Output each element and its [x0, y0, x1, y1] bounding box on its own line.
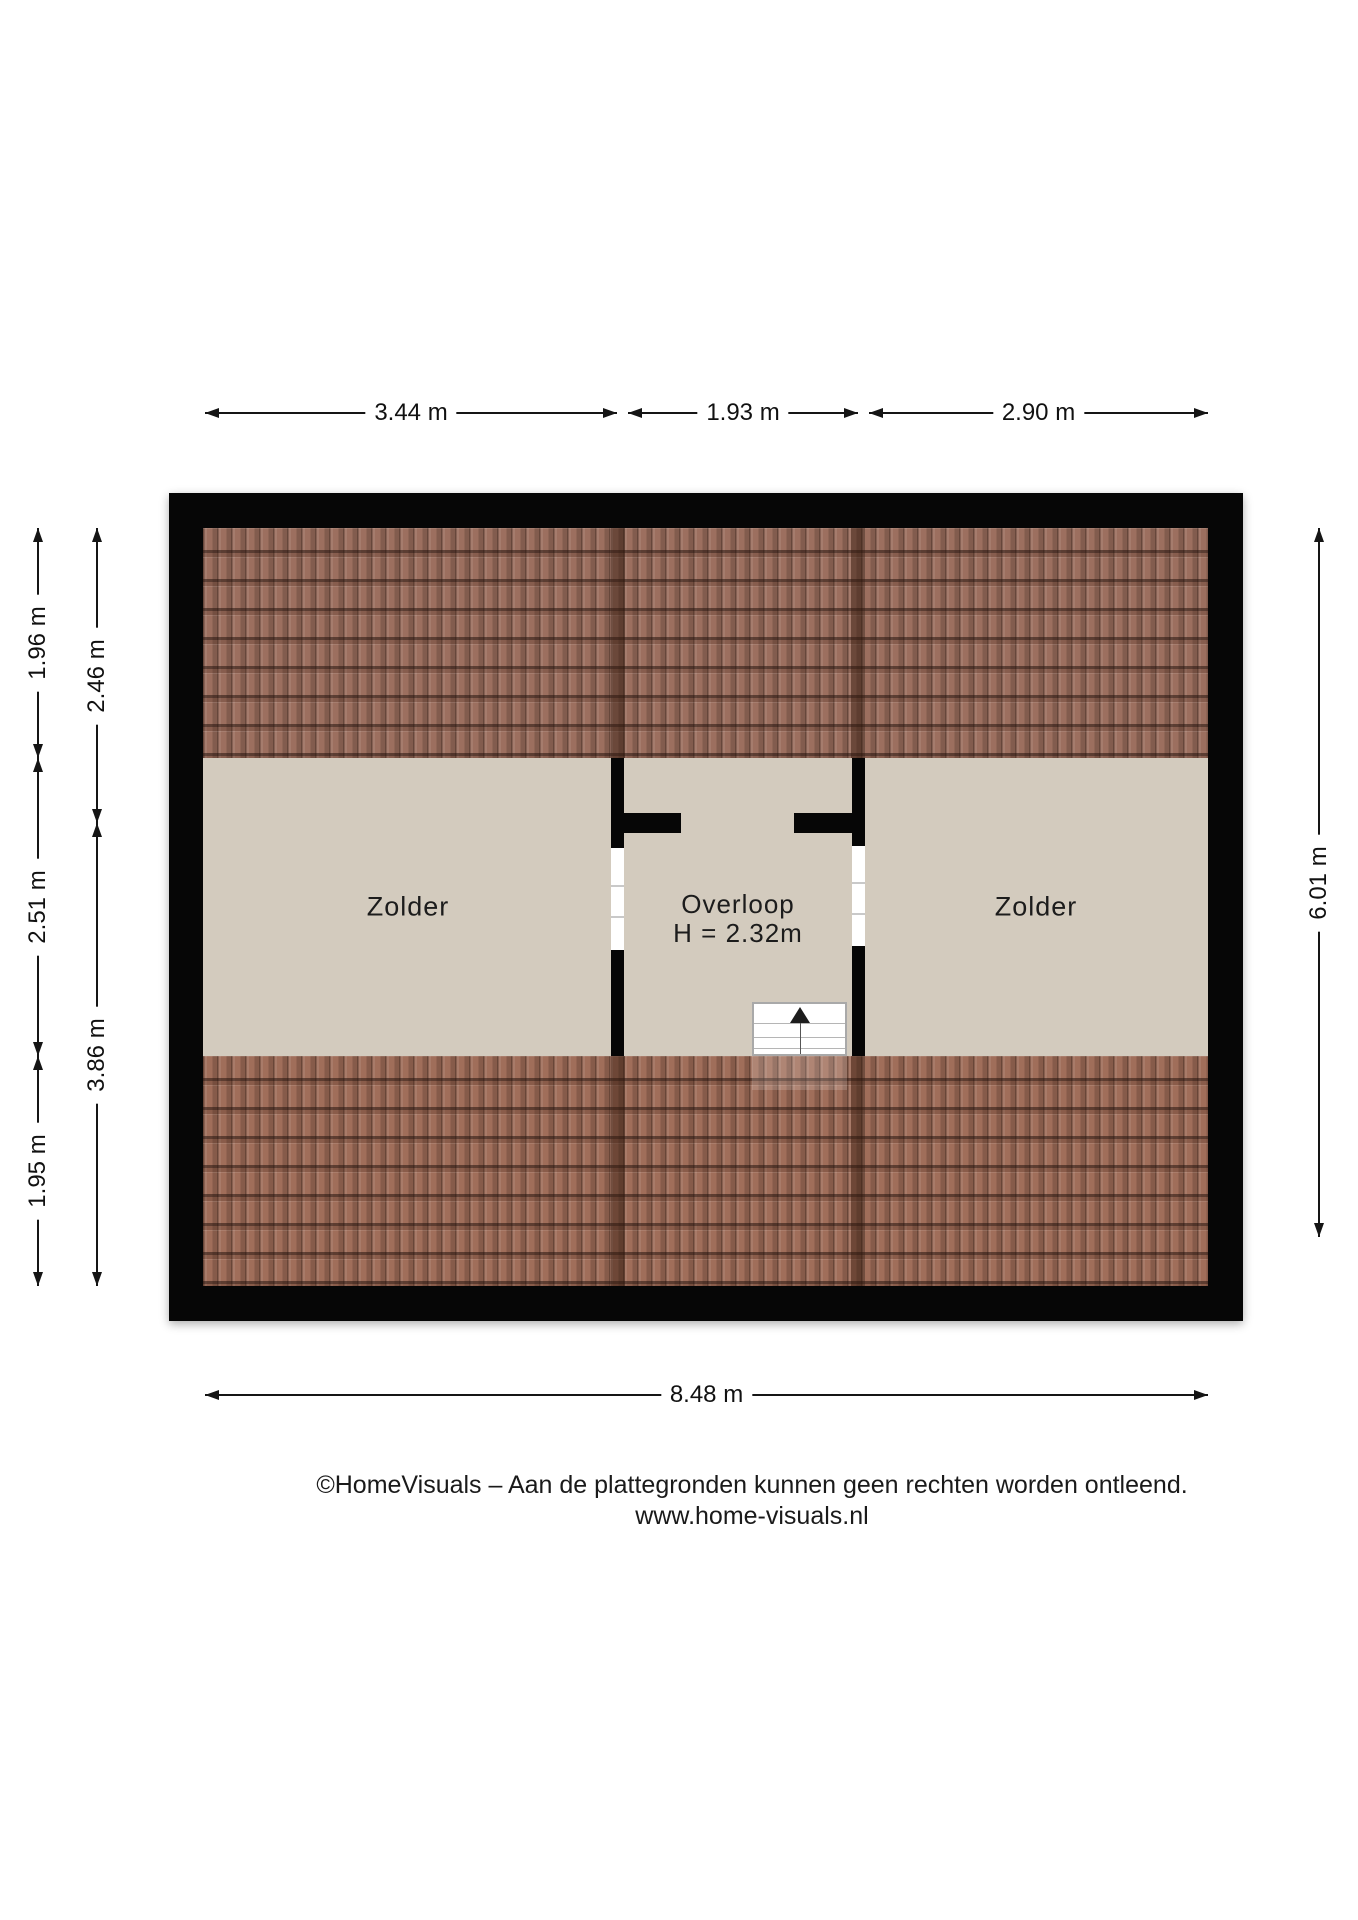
dim-arrow-right-icon — [603, 408, 617, 418]
dimension-label: 2.90 m — [993, 399, 1084, 427]
dim-arrow-left-icon — [205, 408, 219, 418]
dimension-label: 3.44 m — [365, 399, 456, 427]
roof-seam — [851, 528, 865, 758]
dimension-left-outer-3: 1.95 m — [37, 1056, 39, 1286]
interior-wall-stub-right — [794, 813, 852, 833]
footer: ©HomeVisuals – Aan de plattegronden kunn… — [169, 1470, 1335, 1532]
door-panel-line — [611, 916, 624, 918]
roof-seam — [851, 1056, 865, 1286]
interior-wall-stub-left — [624, 813, 681, 833]
dim-arrow-down-icon — [92, 1272, 102, 1286]
dim-arrow-left-icon — [205, 1390, 219, 1400]
roof-section-top — [203, 528, 1208, 758]
dimension-label: 2.51 m — [24, 858, 52, 955]
dimension-top-middle: 1.93 m — [628, 412, 858, 414]
interior-wall-right-lower — [852, 946, 865, 1056]
dim-arrow-up-icon — [92, 528, 102, 542]
dimension-right: 6.01 m — [1318, 528, 1320, 1237]
door-right-zolder — [852, 846, 865, 946]
dim-arrow-up-icon — [33, 758, 43, 772]
dim-arrow-up-icon — [92, 823, 102, 837]
dimension-left-outer-2: 2.51 m — [37, 758, 39, 1056]
room-name: Overloop — [673, 890, 803, 919]
dim-arrow-down-icon — [92, 809, 102, 823]
stairs-up-arrow-icon — [790, 1007, 810, 1023]
dim-arrow-right-icon — [1194, 1390, 1208, 1400]
room-label-overloop: Overloop H = 2.32m — [673, 890, 803, 948]
dim-arrow-right-icon — [844, 408, 858, 418]
dim-arrow-down-icon — [33, 744, 43, 758]
interior-wall-left-lower — [611, 950, 624, 1056]
floorplan-canvas: 3.44 m 1.93 m 2.90 m 1.96 m 2.51 m 1.95 … — [0, 0, 1358, 1920]
dimension-label: 1.95 m — [24, 1122, 52, 1219]
dim-arrow-right-icon — [1194, 408, 1208, 418]
room-label-zolder-left: Zolder — [367, 892, 450, 923]
dim-arrow-left-icon — [869, 408, 883, 418]
dim-arrow-up-icon — [33, 528, 43, 542]
dimension-label: 6.01 m — [1305, 834, 1333, 931]
dim-arrow-down-icon — [1314, 1223, 1324, 1237]
dimension-bottom: 8.48 m — [205, 1394, 1208, 1396]
staircase — [752, 1002, 847, 1056]
room-label-zolder-right: Zolder — [995, 892, 1078, 923]
interior-wall-left-upper — [611, 758, 624, 848]
dimension-label: 1.93 m — [697, 399, 788, 427]
copyright-text: ©HomeVisuals – Aan de plattegronden kunn… — [169, 1470, 1335, 1501]
dim-arrow-left-icon — [628, 408, 642, 418]
dimension-top-left: 3.44 m — [205, 412, 617, 414]
interior-wall-right-upper — [852, 758, 865, 846]
room-height-note: H = 2.32m — [673, 919, 803, 948]
staircase-under-roof — [752, 1056, 847, 1090]
dim-arrow-up-icon — [1314, 528, 1324, 542]
dimension-label: 3.86 m — [83, 1006, 111, 1103]
door-left-zolder — [611, 848, 624, 950]
door-panel-line — [611, 885, 624, 887]
dim-arrow-down-icon — [33, 1272, 43, 1286]
dimension-top-right: 2.90 m — [869, 412, 1208, 414]
dim-arrow-down-icon — [33, 1042, 43, 1056]
website-text: www.home-visuals.nl — [169, 1501, 1335, 1532]
dimension-left-inner-2: 3.86 m — [96, 823, 98, 1286]
dimension-label: 8.48 m — [661, 1381, 752, 1409]
dim-arrow-up-icon — [33, 1056, 43, 1070]
roof-seam — [611, 1056, 625, 1286]
dimension-label: 2.46 m — [83, 627, 111, 724]
dimension-label: 1.96 m — [24, 594, 52, 691]
dimension-left-inner-1: 2.46 m — [96, 528, 98, 823]
dimension-left-outer-1: 1.96 m — [37, 528, 39, 758]
roof-seam — [611, 528, 625, 758]
door-panel-line — [852, 882, 865, 884]
roof-section-bottom — [203, 1056, 1208, 1286]
door-panel-line — [852, 913, 865, 915]
